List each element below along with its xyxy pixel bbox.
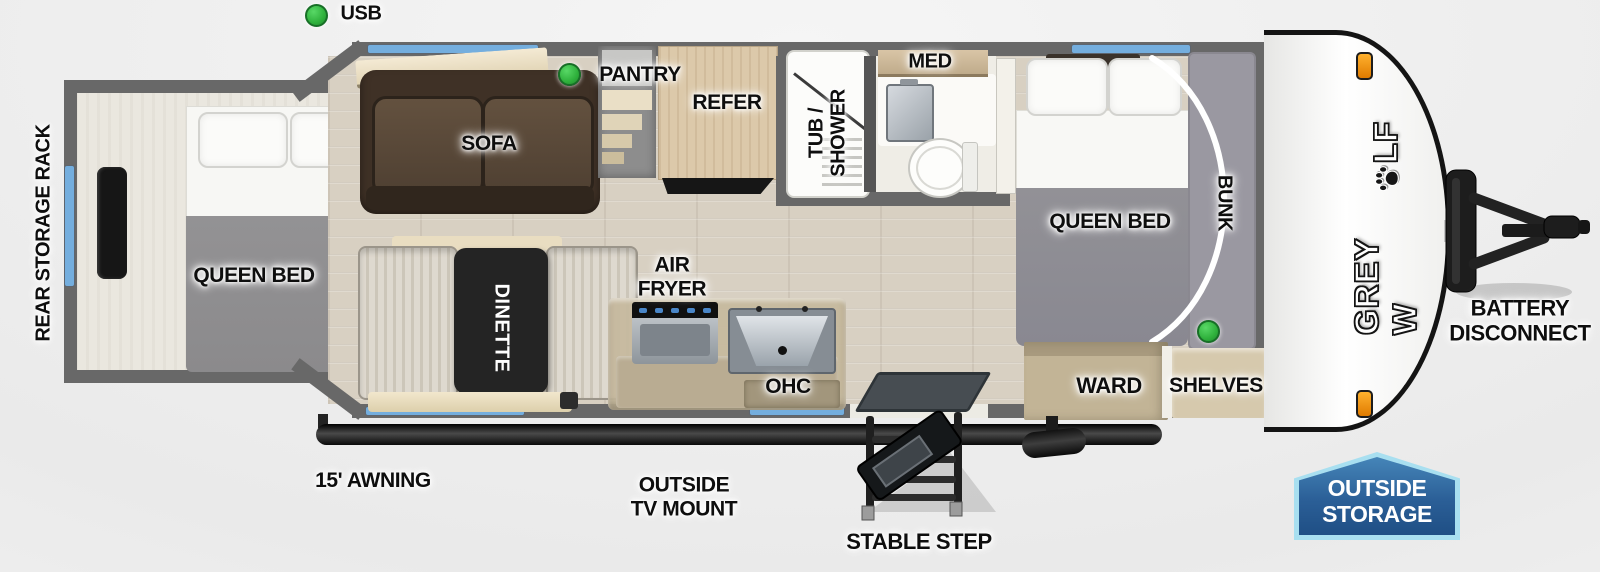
tub-shower-line2: SHOWER xyxy=(828,89,850,177)
clearance-marker-top xyxy=(1356,52,1373,80)
pantry-shelf-1 xyxy=(602,90,652,110)
dinette-bench-left xyxy=(358,246,458,400)
sink-basin xyxy=(736,316,828,366)
rear-bed-pillow-left xyxy=(198,112,288,168)
pantry-label: PANTRY xyxy=(599,63,681,87)
sink-drain xyxy=(778,346,787,355)
toilet-tank xyxy=(962,142,978,192)
tub-shower-line1: TUB / xyxy=(806,108,828,158)
rear-queen-bed-label: QUEEN BED xyxy=(193,264,314,288)
outside-storage-line1: OUTSIDE xyxy=(1328,476,1427,501)
stable-step-label: STABLE STEP xyxy=(846,529,992,555)
rear-storage-rack-label: REAR STORAGE RACK xyxy=(33,124,56,341)
awning-label: 15' AWNING xyxy=(315,469,431,493)
air-fryer-line1: AIR xyxy=(655,253,690,276)
stable-step xyxy=(838,410,1008,528)
sofa-label: SOFA xyxy=(461,132,517,156)
burner-knob xyxy=(671,308,679,313)
stove-oven-front xyxy=(640,324,710,356)
air-fryer-line2: FRYER xyxy=(638,277,706,300)
bathroom-sink xyxy=(886,84,934,142)
outside-tv-mount-label: OUTSIDE TV MOUNT xyxy=(631,473,737,520)
outside-storage-line2: STORAGE xyxy=(1322,502,1432,527)
battery-line1: BATTERY xyxy=(1471,295,1570,320)
ward-label: WARD xyxy=(1076,373,1142,399)
bathroom-faucet xyxy=(900,79,918,85)
rear-tv xyxy=(97,167,127,279)
entry-door-mat xyxy=(854,372,991,412)
sink-faucet-knob xyxy=(756,306,762,312)
battery-line2: DISCONNECT xyxy=(1449,320,1590,345)
outside-storage-badge-inner: OUTSIDE STORAGE xyxy=(1299,457,1455,535)
clearance-marker-bottom xyxy=(1356,390,1373,418)
burner-knob xyxy=(655,308,663,313)
air-fryer-label: AIR FRYER xyxy=(638,253,706,300)
stove-body xyxy=(632,318,718,364)
front-queen-bed-label: QUEEN BED xyxy=(1049,210,1170,234)
toilet-seat xyxy=(916,146,964,190)
sofa-base xyxy=(366,186,594,210)
pantry-indicator-dot xyxy=(558,63,581,86)
shelves-label: SHELVES xyxy=(1169,374,1263,398)
battery-disconnect-label: BATTERY DISCONNECT xyxy=(1449,296,1590,345)
med-label: MED xyxy=(908,51,951,74)
hitch-assembly xyxy=(1444,158,1594,308)
ohc-label: OHC xyxy=(765,375,810,399)
bathroom-door xyxy=(996,58,1016,194)
refer-label: REFER xyxy=(692,91,761,115)
tub-shower-label: TUB / SHOWER xyxy=(806,89,851,177)
dinette-label: DINETTE xyxy=(490,283,513,372)
paw-print-icon xyxy=(1373,166,1400,193)
outside-storage-badge: OUTSIDE STORAGE xyxy=(1294,452,1460,540)
awning-end-roller xyxy=(1021,427,1087,460)
bunk-label: BUNK xyxy=(1213,175,1236,231)
burner-knob xyxy=(703,308,711,313)
bunk-curtain-arc xyxy=(1130,50,1260,350)
brand-text-prefix: GREY W xyxy=(1348,196,1424,335)
stove-control-panel xyxy=(632,302,718,318)
front-bed-pillow-left xyxy=(1026,58,1108,116)
pantry-shelf-2 xyxy=(602,114,642,130)
pantry-shelf-4 xyxy=(602,152,624,164)
dinette-footer xyxy=(368,392,572,412)
kitchen-sink xyxy=(728,308,836,374)
floorplan-canvas: GREY WLF OUTSIDE STORAGE xyxy=(0,0,1600,572)
brand-text-suffix: LF xyxy=(1367,121,1405,163)
refrigerator-base xyxy=(662,178,774,194)
usb-label: USB xyxy=(340,3,381,26)
usb-indicator-dot xyxy=(305,4,328,27)
dinette-footer-endcap xyxy=(560,392,578,409)
rear-window xyxy=(65,166,74,286)
bathroom-divider-wall xyxy=(864,56,876,192)
bunk-indicator-dot xyxy=(1197,320,1220,343)
sink-faucet-knob xyxy=(802,306,808,312)
burner-knob xyxy=(687,308,695,313)
pantry-shelf-3 xyxy=(602,134,632,148)
outside-tv-line2: TV MOUNT xyxy=(631,497,737,520)
brand-logo: GREY WLF xyxy=(1348,121,1424,335)
outside-tv-line1: OUTSIDE xyxy=(639,473,730,496)
burner-knob xyxy=(639,308,647,313)
